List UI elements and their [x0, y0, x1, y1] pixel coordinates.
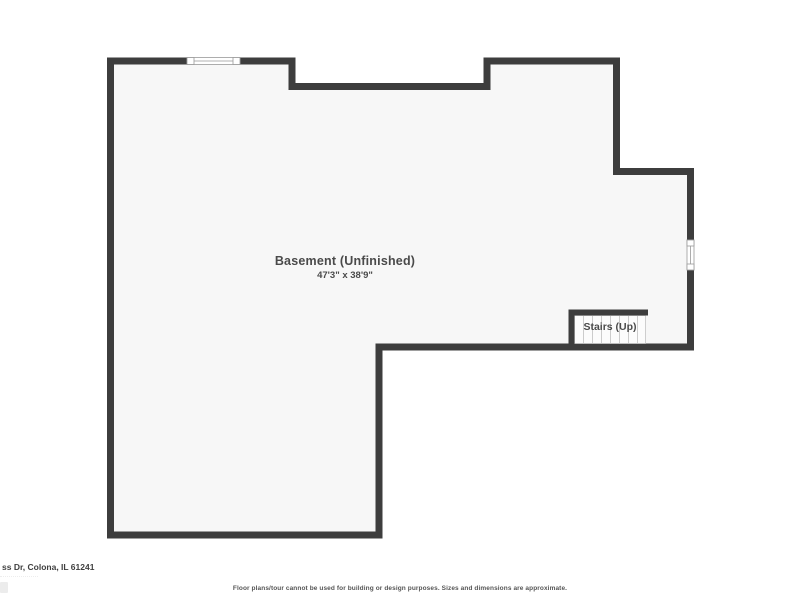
faint-divider: [0, 576, 38, 577]
footer-disclaimer: Floor plans/tour cannot be used for buil…: [0, 585, 800, 592]
floor-plan-canvas: [0, 0, 800, 600]
room-dimensions: 47'3" x 38'9": [195, 270, 495, 281]
stairs-label: Stairs (Up): [555, 321, 665, 333]
room-label: Basement (Unfinished): [195, 254, 495, 268]
footer-address: ss Dr, Colona, IL 61241: [2, 562, 94, 572]
right-window-icon: [687, 240, 694, 270]
floor-plan-outline: [111, 61, 691, 535]
floor-plan-page: Basement (Unfinished) 47'3" x 38'9" Stai…: [0, 0, 800, 600]
top-window-icon: [187, 58, 240, 65]
